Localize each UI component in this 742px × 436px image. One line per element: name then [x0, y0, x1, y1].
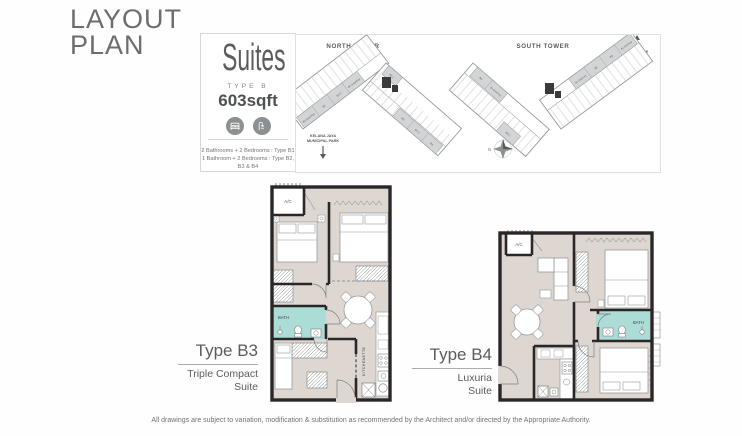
suites-config-line2: 1 Bathroom + 2 Bedrooms : Type B2, B3 & … [201, 155, 295, 171]
park-label-line2: MUNICIPAL PARK [307, 139, 340, 143]
stair-core [392, 85, 398, 92]
municipal-park-marker: KELANA JAYA MUNICIPAL PARK [307, 134, 340, 159]
site-plan-panel: NORTH TOWER SOUTH TOWER KL SKYLINE VIEW … [295, 34, 661, 173]
sink-fixture [311, 329, 321, 337]
south-tower-plan: B4 B1 Dual Key B4-2 B1 Dual Key B2 B3 B1… [449, 35, 652, 156]
coffee-table [540, 290, 551, 298]
sink-fixture [603, 328, 613, 336]
bed-bedroom2 [600, 348, 652, 393]
ac-label: A/C [284, 199, 292, 204]
suites-type-label: TYPE B [201, 83, 295, 90]
stair-core [555, 91, 561, 98]
unit-b3-title: Type B3 [178, 342, 258, 360]
page-title-line2: PLAN [70, 32, 182, 58]
suites-area-value: 603sqft [201, 91, 295, 111]
site-plan-drawing: NORTH TOWER SOUTH TOWER KL SKYLINE VIEW … [296, 35, 660, 172]
page-title: LAYOUT PLAN [70, 6, 182, 58]
down-arrow-icon [320, 154, 326, 159]
disclaimer-text: All drawings are subject to variation, m… [0, 417, 742, 424]
suites-card-divider [208, 139, 288, 140]
suites-card-title: Suites [222, 38, 285, 78]
unit-b3-label-block: Type B3 Triple Compact Suite [178, 342, 258, 393]
unit-b4-title: Type B4 [412, 346, 492, 364]
dining-table [510, 304, 543, 339]
stove [562, 362, 572, 374]
shower-icon [253, 117, 271, 135]
suites-info-card: Suites TYPE B 603sqft 2 Bathrooms + [200, 33, 296, 172]
entry-opening [498, 366, 502, 384]
unit-b4-subtitle-line2: Suite [412, 385, 492, 398]
south-tower-label: SOUTH TOWER [517, 43, 570, 50]
toilet-fixture [295, 326, 302, 334]
entry-opening [336, 397, 356, 403]
unit-b4-subtitle-line1: Luxuria [412, 372, 492, 385]
shower-fixture [640, 330, 644, 334]
lift-core [382, 77, 391, 88]
stove [378, 354, 389, 367]
bed-bedroom3 [275, 343, 292, 389]
bath-label: BATH [278, 315, 289, 320]
park-label-line1: KELANA JAYA [310, 134, 336, 138]
floor-plan-type-b4: A/C [496, 230, 672, 406]
toilet-fixture [619, 326, 626, 334]
bed-bedroom1 [272, 215, 325, 262]
layout-plan-page: LAYOUT PLAN Suites TYPE B 603sqft [0, 0, 742, 436]
unit-b3-divider [178, 364, 258, 365]
bath-label: BATH [633, 320, 644, 325]
compass-north-label: N [488, 147, 491, 152]
shower-fixture [278, 330, 282, 334]
suites-config-line1: 2 Bathrooms + 2 Bedrooms : Type B1 [201, 147, 295, 155]
suites-feature-icons [201, 117, 295, 135]
unit-b3-subtitle-line2: Suite [178, 381, 258, 394]
floor-plan-type-b3: A/C [252, 182, 400, 406]
lift-core [545, 83, 554, 94]
kitchenette-label: KITCHENETTE [362, 346, 366, 376]
ac-label: A/C [515, 242, 522, 247]
unit-b4-label-block: Type B4 Luxuria Suite [412, 346, 492, 397]
page-title-line1: LAYOUT [70, 6, 182, 32]
dining-table [340, 291, 375, 328]
unit-b3-subtitle-line1: Triple Compact [178, 368, 258, 381]
kitchen-sink [378, 371, 389, 381]
unit-b4-divider [412, 368, 492, 369]
bed-icon [226, 117, 244, 135]
